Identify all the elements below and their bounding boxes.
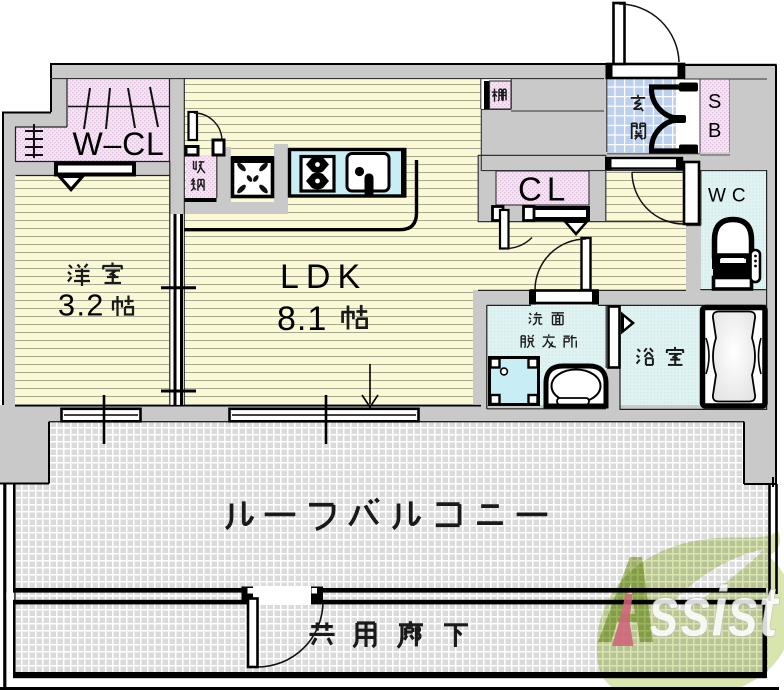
svg-text:LDK: LDK	[280, 258, 367, 296]
svg-text:3.2: 3.2	[58, 289, 105, 323]
svg-text:B: B	[708, 120, 721, 142]
svg-text:S: S	[708, 91, 721, 113]
svg-text:W–CL: W–CL	[73, 126, 165, 162]
svg-text:CL: CL	[518, 171, 570, 208]
svg-text:WC: WC	[708, 186, 752, 207]
svg-text:8.1: 8.1	[277, 300, 327, 338]
svg-text:ssist: ssist	[648, 573, 781, 652]
